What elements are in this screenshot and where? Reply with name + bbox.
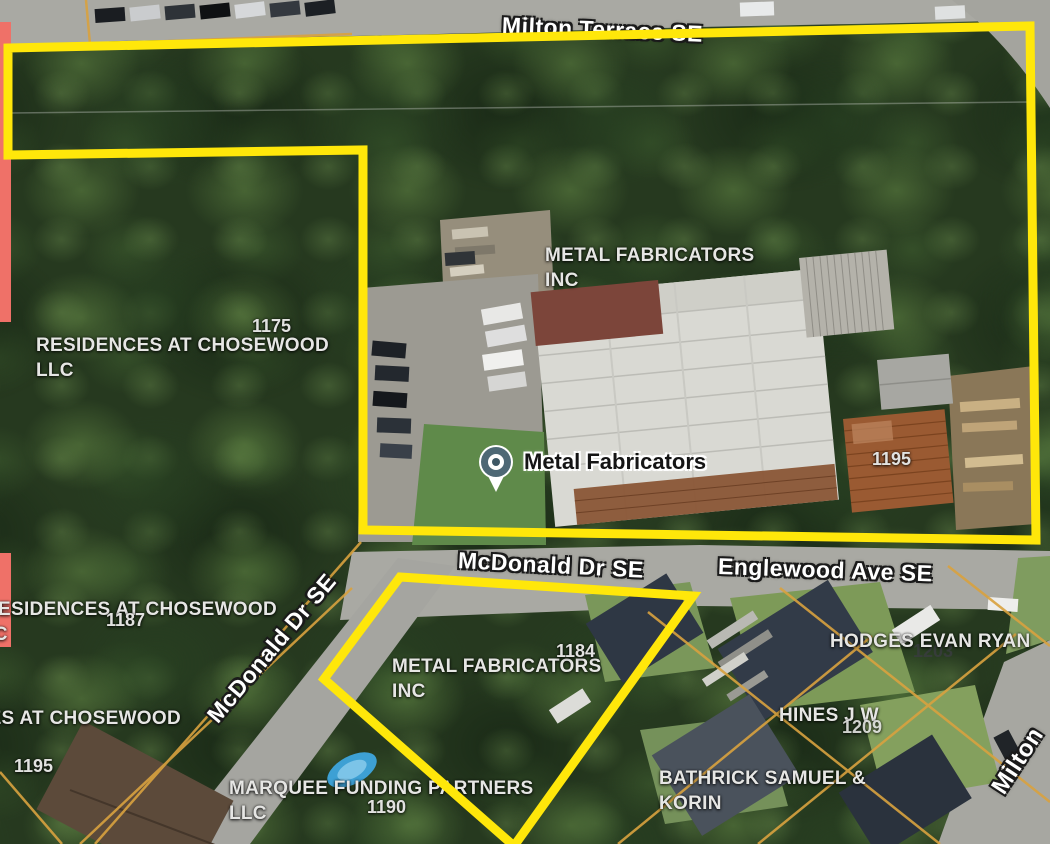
boundary-south-parcel (324, 577, 693, 844)
map-canvas[interactable]: 1203 RESIDENCES AT CHOSEWOOD LLC 1175 ME… (0, 0, 1050, 844)
boundary-main-parcel (8, 26, 1036, 540)
boundary-highlight-layer (0, 0, 1050, 844)
